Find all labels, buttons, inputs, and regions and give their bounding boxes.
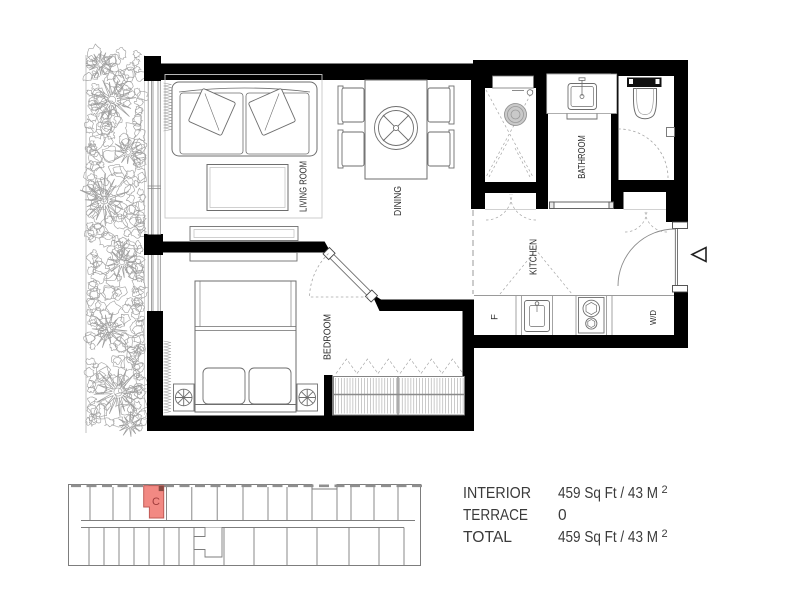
svg-text:2: 2 (662, 528, 668, 540)
svg-text:0: 0 (558, 507, 567, 524)
svg-text:BEDROOM: BEDROOM (322, 314, 334, 360)
svg-text:TOTAL: TOTAL (463, 529, 512, 546)
svg-text:2: 2 (662, 484, 668, 496)
svg-text:BATHROOM: BATHROOM (576, 135, 588, 179)
svg-text:459 Sq Ft / 43 M: 459 Sq Ft / 43 M (558, 485, 658, 502)
svg-text:459 Sq Ft / 43 M: 459 Sq Ft / 43 M (558, 529, 658, 546)
svg-text:KITCHEN: KITCHEN (528, 239, 540, 275)
svg-text:LIVING ROOM: LIVING ROOM (298, 161, 310, 212)
svg-text:DINING: DINING (392, 186, 404, 216)
svg-text:F: F (490, 314, 501, 320)
svg-text:INTERIOR: INTERIOR (463, 485, 531, 502)
svg-text:TERRACE: TERRACE (463, 507, 528, 524)
svg-text:C: C (152, 496, 160, 508)
svg-text:W/D: W/D (648, 310, 658, 325)
